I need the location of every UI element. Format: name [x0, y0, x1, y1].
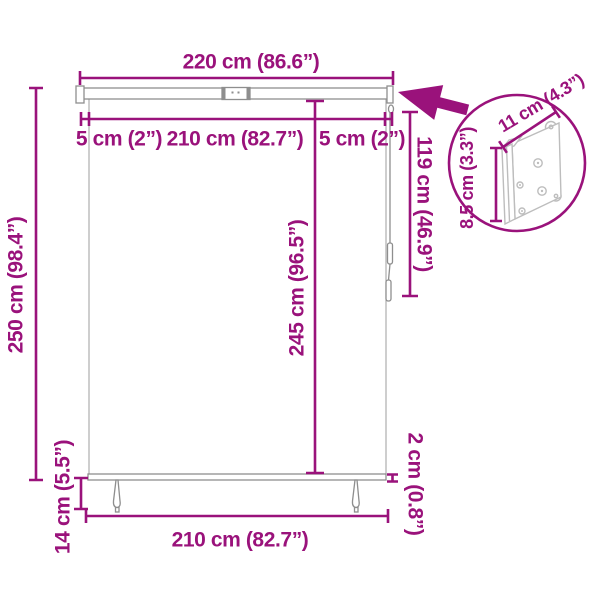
fabric-panel-edges [89, 99, 386, 474]
bottom-width-label: 210 cm (82.7”) [172, 530, 309, 551]
mounting-bracket-detail [502, 122, 561, 225]
cord-toggle-2 [386, 280, 391, 301]
bar-thickness-label: 2 cm (0.8”) [405, 433, 426, 536]
total-height-label: 250 cm (98.4”) [6, 217, 27, 354]
cord-toggle-1 [388, 243, 393, 264]
left-foot-tip [116, 508, 120, 513]
screw-hole-dot [519, 184, 521, 186]
inner-width-label: 210 cm (82.7”) [167, 129, 304, 150]
screw-hole-dot [541, 190, 543, 192]
dimension-line-insets [81, 112, 392, 126]
foot-height-label: 14 cm (5.5”) [53, 440, 74, 554]
screw-hole-dot [521, 210, 523, 212]
screw-hole-dot [537, 162, 539, 164]
dimension-line-bottom-width [86, 509, 388, 523]
left-foot-peg [113, 480, 120, 508]
top-bar-left-end-cap [76, 86, 84, 103]
callout-arrow-icon [398, 85, 469, 120]
left-inset-label: 5 cm (2”) [76, 129, 162, 150]
cord-attachment-loop [389, 105, 394, 113]
dimension-line-total-height [29, 88, 43, 480]
dimension-line-foot-height [74, 478, 88, 509]
pull-cord-lower [389, 264, 391, 280]
connector-dot [232, 92, 234, 94]
right-inset-label: 5 cm (2”) [319, 129, 405, 150]
connector-left-mark [222, 88, 226, 99]
fabric-height-label: 245 cm (96.5”) [287, 220, 308, 357]
bottom-bar [88, 474, 386, 480]
bracket-height-label: 8,5 cm (3.3”) [458, 127, 476, 229]
connector-right-mark [247, 88, 251, 99]
top-bar-center-connector [222, 88, 250, 100]
total-width-label: 220 cm (86.6”) [183, 52, 320, 73]
connector-dot [238, 92, 240, 94]
dimension-line-bracket-height [490, 148, 502, 221]
dimension-line-fabric-height [306, 101, 324, 473]
top-bar-right-end-cap [387, 86, 393, 103]
cord-length-label: 119 cm (46.9”) [414, 136, 435, 272]
right-foot-tip [355, 508, 359, 513]
dimension-line-bar-thickness [387, 475, 398, 482]
right-foot-peg [352, 480, 359, 508]
product-dimension-image: 220 cm (86.6”) 5 cm (2”) 210 cm (82.7”) … [0, 0, 600, 600]
